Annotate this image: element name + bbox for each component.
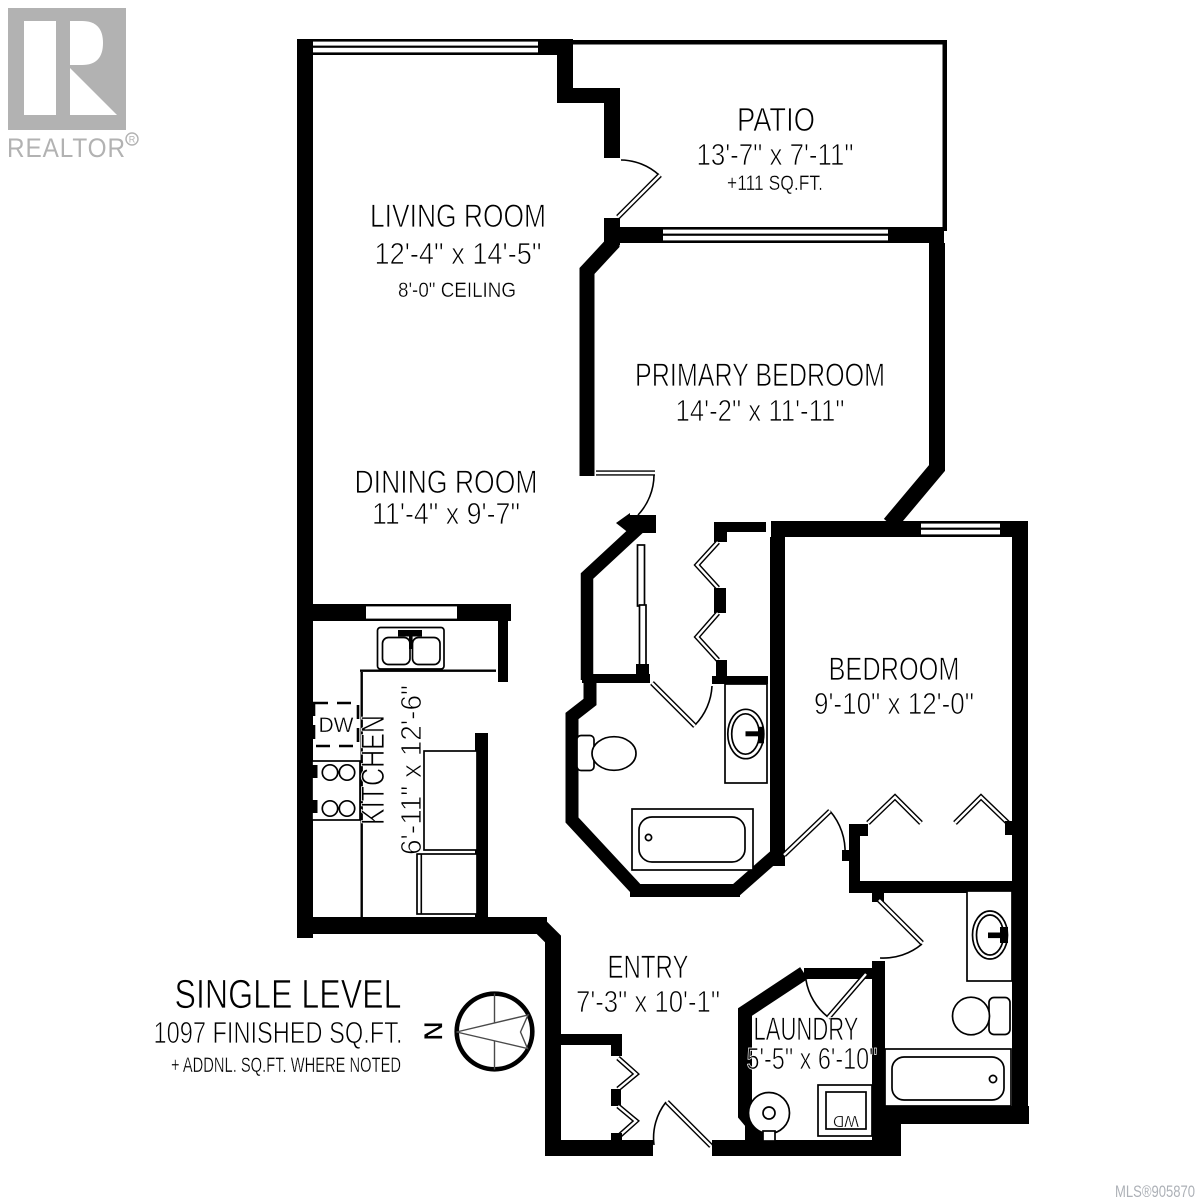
svg-text:11'-4" x 9'-7": 11'-4" x 9'-7" [372, 497, 520, 531]
svg-text:12'-4" x 14'-5": 12'-4" x 14'-5" [375, 237, 542, 271]
svg-text:7'-3" x 10'-1": 7'-3" x 10'-1" [576, 985, 720, 1019]
svg-text:13'-7" x 7'-11": 13'-7" x 7'-11" [697, 138, 854, 172]
svg-text:SINGLE LEVEL: SINGLE LEVEL [175, 971, 402, 1017]
svg-text:14'-2" x 11'-11": 14'-2" x 11'-11" [676, 394, 845, 428]
svg-text:1097 FINISHED SQ.FT.: 1097 FINISHED SQ.FT. [154, 1015, 403, 1050]
svg-text:DW: DW [319, 714, 354, 737]
svg-text:5'-5" x 6'-10": 5'-5" x 6'-10" [747, 1042, 878, 1076]
svg-text:8'-0" CEILING: 8'-0" CEILING [398, 279, 516, 302]
svg-text:N: N [418, 1021, 448, 1041]
svg-text:DINING ROOM: DINING ROOM [355, 464, 538, 500]
svg-text:REALTOR: REALTOR [7, 133, 126, 163]
svg-text:PRIMARY BEDROOM: PRIMARY BEDROOM [635, 357, 885, 393]
svg-text:PATIO: PATIO [737, 101, 815, 138]
svg-text:+111 SQ.FT.: +111 SQ.FT. [727, 172, 823, 195]
svg-text:+ ADDNL. SQ.FT. WHERE NOTED: + ADDNL. SQ.FT. WHERE NOTED [171, 1054, 401, 1077]
svg-text:WD: WD [833, 1112, 859, 1129]
svg-text:BEDROOM: BEDROOM [829, 651, 960, 687]
svg-text:MLS®905870: MLS®905870 [1115, 1183, 1195, 1200]
svg-text:ENTRY: ENTRY [608, 949, 689, 985]
svg-text:KITCHEN: KITCHEN [355, 715, 391, 825]
svg-text:LIVING ROOM: LIVING ROOM [370, 198, 546, 234]
svg-text:R: R [129, 135, 136, 145]
svg-text:9'-10" x 12'-0": 9'-10" x 12'-0" [814, 687, 974, 721]
svg-text:6'-11" x 12'-6": 6'-11" x 12'-6" [396, 685, 428, 855]
